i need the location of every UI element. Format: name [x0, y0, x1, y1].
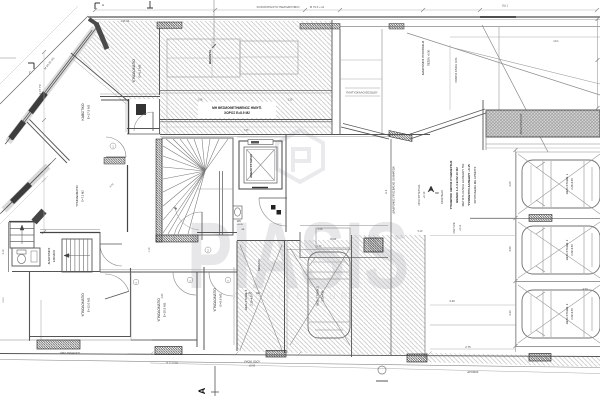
svg-text:ΟΡΙΟ: ΟΡΙΟ	[3, 297, 5, 303]
svg-text:1.10: 1.10	[148, 247, 151, 252]
svg-text:ΣΚΥΡΟΔΕΜΑ ΜΕ ΑΡΜΟΥΣ: ΣΚΥΡΟΔΕΜΑ ΜΕ ΑΡΜΟΥΣ	[473, 166, 477, 203]
svg-text:8R: 8R	[242, 229, 245, 231]
svg-text:ΥΠΝΟΔΩΜΑΤΙΟ: ΥΠΝΟΔΩΜΑΤΙΟ	[75, 185, 79, 207]
svg-text:3.40: 3.40	[449, 299, 455, 303]
svg-text:+4.67 ΥΨ: +4.67 ΥΨ	[38, 83, 42, 96]
svg-text:Μ 70.0 + ΙΔ: Μ 70.0 + ΙΔ	[310, 5, 325, 9]
svg-text:ΜΗ ΘΕΣΜΟΘΕΤΗΜΕΝΟΣ ΗΜΙΥΠ.: ΜΗ ΘΕΣΜΟΘΕΤΗΜΕΝΟΣ ΗΜΙΥΠ.	[212, 106, 262, 110]
svg-text:10.1: 10.1	[553, 39, 559, 43]
svg-text:+0.10: +0.10	[422, 191, 426, 198]
svg-text:ΒΕΡΑΝΤΑ: ΒΕΡΑΝΤΑ	[208, 49, 212, 64]
svg-text:Ε=7.2 Μ2: Ε=7.2 Μ2	[81, 190, 85, 202]
svg-text:ΥΠΑΙΘΡΙΟΣ ΧΩΡΟΣ ΣΤΑΘΜΕΥΣΗΣ: ΥΠΑΙΘΡΙΟΣ ΧΩΡΟΣ ΣΤΑΘΜΕΥΣΗΣ	[449, 160, 453, 209]
svg-text:ΚΑΘΙΣΤΙΚΟ: ΚΑΘΙΣΤΙΚΟ	[81, 103, 85, 120]
svg-text:ΚΡΑΣΠΕΔΟ: ΚΡΑΣΠΕΔΟ	[440, 190, 444, 204]
svg-text:ΑΝΕΛΚΥΣΤΗΡΑΣ: ΑΝΕΛΚΥΣΤΗΡΑΣ	[249, 154, 253, 178]
svg-text:ΟΡΙΟ ΦΥΤΕΥΣΗΣ: ΟΡΙΟ ΦΥΤΕΥΣΗΣ	[417, 184, 421, 205]
svg-text:ΘΕΣΗ ΣΤΑΘΜ. 5: ΘΕΣΗ ΣΤΑΘΜ. 5	[316, 286, 320, 306]
svg-text:7.56: 7.56	[244, 129, 249, 132]
svg-text:ΧΩΡΟΣ Ε=8.9 Μ2: ΧΩΡΟΣ Ε=8.9 Μ2	[224, 111, 250, 115]
svg-text:2.05: 2.05	[508, 181, 512, 187]
svg-text:ΔΙΑΔΡΟΜΟΣ ΠΡΟΣΒΑΣΗΣ ΟΧΗΜΑΤΩΝ: ΔΙΑΔΡΟΜΟΣ ΠΡΟΣΒΑΣΗΣ ΟΧΗΜΑΤΩΝ	[392, 166, 396, 213]
svg-text:A: A	[197, 387, 207, 394]
svg-text:ΚΛΙΣΗ 2%: ΚΛΙΣΗ 2%	[453, 222, 456, 234]
svg-text:2.98 ΟΔ: 2.98 ΟΔ	[121, 20, 130, 23]
svg-text:2.30: 2.30	[317, 245, 322, 248]
svg-text:ΜΕΓΙΣΤΗ ΚΛΙΣΗ ΔΑΠΕΔΟΥ 5%: ΜΕΓΙΣΤΗ ΚΛΙΣΗ ΔΑΠΕΔΟΥ 5%	[461, 163, 465, 206]
svg-text:ΥΨΟΜΕΤΡΟ ΔΑΠΕΔΟΥ +0.15: ΥΨΟΜΕΤΡΟ ΔΑΠΕΔΟΥ +0.15	[467, 164, 471, 206]
svg-text:ΔΡΟΜΟΣ: ΔΡΟΜΟΣ	[467, 370, 479, 374]
svg-text:Ε=6.2 Μ2: Ε=6.2 Μ2	[138, 64, 142, 77]
svg-text:WC: WC	[237, 219, 241, 223]
svg-text:ΘΕΣΗ ΣΤΑΘΜ. 1: ΘΕΣΗ ΣΤΑΘΜ. 1	[565, 173, 569, 194]
svg-text:ΘΕΣΗ ΣΤΑΘΜ. 4: ΘΕΣΗ ΣΤΑΘΜ. 4	[244, 289, 248, 310]
svg-text:ΘΕΣΗ ΣΤΑΘΜ. 3: ΘΕΣΗ ΣΤΑΘΜ. 3	[565, 303, 569, 324]
svg-text:ΡΑΜΠΑ ΚΛΙΣΗ 10%: ΡΑΜΠΑ ΚΛΙΣΗ 10%	[454, 57, 458, 83]
svg-text:ΥΠΝΟΔΩΜΑΤΙΟ: ΥΠΝΟΔΩΜΑΤΙΟ	[157, 298, 161, 322]
svg-text:ΠΕΖΩΝ +0.30: ΠΕΖΩΝ +0.30	[427, 49, 431, 66]
svg-text:2.08: 2.08	[318, 228, 323, 231]
svg-text:4.59: 4.59	[508, 246, 512, 252]
svg-text:11.0: 11.0	[385, 189, 388, 194]
svg-text:2.30×4.59: 2.30×4.59	[251, 294, 254, 306]
svg-text:2.30×4.59: 2.30×4.59	[571, 178, 574, 190]
svg-text:ΕΙΣΟΔΟΣ: ΕΙΣΟΔΟΣ	[52, 250, 56, 262]
svg-text:2.30×4.59: 2.30×4.59	[571, 308, 574, 320]
svg-text:ΥΠΝΟΔΩΜΑΤΙΟ: ΥΠΝΟΔΩΜΑΤΙΟ	[81, 293, 85, 317]
svg-text:ΥΨΟΜ. ΟΔΟΥ: ΥΨΟΜ. ΟΔΟΥ	[244, 361, 261, 364]
svg-text:ΠΛΑΤΥΣΚΑΛΟ ΕΙΣΟΔΟΥ: ΠΛΑΤΥΣΚΑΛΟ ΕΙΣΟΔΟΥ	[346, 91, 378, 95]
svg-text:ΔΙΑΔΡΟΜΟΣ ΠΡΟΣΒΑΣΗΣ: ΔΙΑΔΡΟΜΟΣ ΠΡΟΣΒΑΣΗΣ	[421, 41, 425, 76]
svg-text:Ε=10.5 Μ2: Ε=10.5 Μ2	[163, 302, 167, 317]
svg-text:Ε=9.6 Μ2: Ε=9.6 Μ2	[219, 293, 223, 306]
svg-text:2.30×4.59: 2.30×4.59	[322, 290, 325, 301]
svg-text:2.83: 2.83	[161, 293, 164, 298]
svg-text:±0.00: ±0.00	[249, 365, 256, 368]
svg-text:+0.12: +0.12	[459, 224, 462, 231]
svg-text:±0.00: ±0.00	[330, 237, 337, 241]
svg-text:ΟΔ 1: ΟΔ 1	[502, 4, 509, 8]
svg-text:Δ: Δ	[102, 3, 104, 7]
svg-text:Ε=12.0 Μ2: Ε=12.0 Μ2	[87, 297, 91, 312]
svg-text:3.10: 3.10	[2, 249, 5, 254]
svg-text:Γ: Γ	[29, 71, 31, 75]
svg-text:ΥΠΝΟΔΩΜΑΤΙΟ: ΥΠΝΟΔΩΜΑΤΙΟ	[132, 59, 136, 83]
svg-text:5.40: 5.40	[418, 230, 423, 233]
svg-text:Ν 77.5 ΟΔ: Ν 77.5 ΟΔ	[166, 362, 178, 365]
svg-text:ΟΡΙΟ ΤΕΜΑΧΙΟΥ: ΟΡΙΟ ΤΕΜΑΧΙΟΥ	[60, 351, 81, 355]
svg-text:Ε=17.5 Μ2: Ε=17.5 Μ2	[87, 104, 91, 119]
svg-text:ΥΠΝΟΔΩΜΑΤΙΟ: ΥΠΝΟΔΩΜΑΤΙΟ	[213, 288, 217, 312]
svg-text:2.75: 2.75	[465, 345, 471, 349]
svg-text:ΔΙΑΔΡΟΜΟΣ: ΔΙΑΔΡΟΜΟΣ	[47, 247, 51, 264]
svg-text:ΘΕΣΕΙΣ 1-2-3 Ε=62.10 Μ2: ΘΕΣΕΙΣ 1-2-3 Ε=62.10 Μ2	[455, 167, 459, 203]
svg-text:±0.45: ±0.45	[237, 224, 243, 226]
svg-text:2.30×4.59: 2.30×4.59	[571, 244, 574, 256]
svg-text:2.30: 2.30	[288, 99, 293, 102]
svg-text:ΒΕΡΑΝΤΑ: ΒΕΡΑΝΤΑ	[257, 259, 261, 271]
svg-text:ΘΕΣΗ ΣΤΑΘΜ. 2: ΘΕΣΗ ΣΤΑΘΜ. 2	[565, 239, 569, 260]
svg-text:ΚΟΙΝΟΧΡΗΣΤΟ ΠΕΖΟΔΡΟΜΙΟ: ΚΟΙΝΟΧΡΗΣΤΟ ΠΕΖΟΔΡΟΜΙΟ	[257, 5, 300, 9]
svg-text:2.30: 2.30	[508, 310, 512, 316]
svg-text:ΖΩΝΗ ΠΡΑΣΙΝΟΥ: ΖΩΝΗ ΠΡΑΣΙΝΟΥ	[519, 113, 523, 134]
svg-text:1.06: 1.06	[198, 99, 203, 102]
svg-text:ΒΜ: ΒΜ	[435, 192, 439, 195]
svg-text:4.59: 4.59	[582, 287, 588, 291]
